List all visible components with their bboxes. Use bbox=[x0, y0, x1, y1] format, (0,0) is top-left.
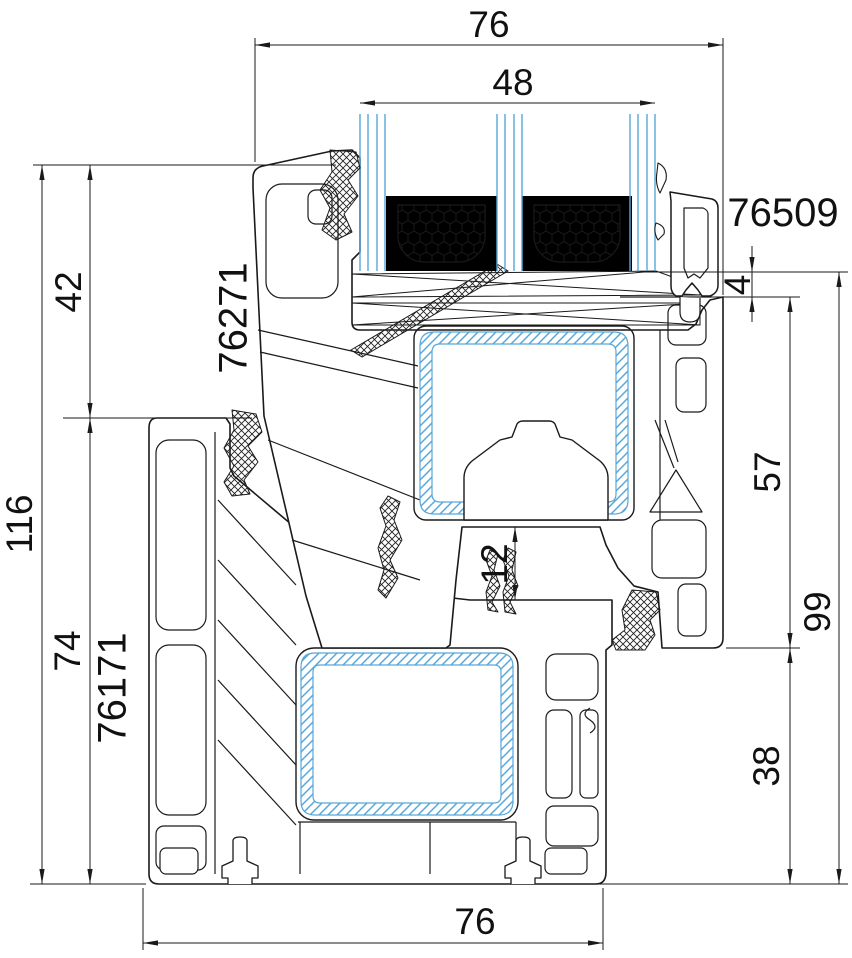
dim-frame-height: 74 bbox=[47, 630, 88, 671]
label-frame-profile: 76171 bbox=[91, 632, 135, 743]
bead-gasket-tip bbox=[655, 163, 666, 240]
dim-rebate-height: 99 bbox=[797, 591, 838, 632]
spacer-honeycomb-right bbox=[534, 205, 620, 262]
spacer-honeycomb-left bbox=[398, 205, 485, 262]
dim-glass-clearance: 4 bbox=[717, 275, 758, 296]
dim-sash-face-height: 42 bbox=[48, 271, 89, 312]
window-cross-section-drawing: 76 48 116 42 74 12 4 57 99 38 76 76271 7… bbox=[0, 0, 852, 958]
glazing-bead-profile bbox=[655, 163, 718, 322]
label-sash-profile: 76271 bbox=[212, 262, 256, 373]
cross-section-svg: 76 48 116 42 74 12 4 57 99 38 76 76271 7… bbox=[0, 0, 852, 958]
dim-frame-lower-height: 38 bbox=[746, 745, 787, 786]
glazing-unit bbox=[360, 114, 655, 271]
dim-frame-width: 76 bbox=[454, 901, 495, 942]
dim-sash-profile-height: 57 bbox=[747, 451, 788, 492]
dim-overall-height: 116 bbox=[0, 495, 40, 554]
dim-glazing-thickness: 48 bbox=[492, 62, 533, 103]
dim-sash-width: 76 bbox=[468, 4, 509, 45]
dim-hardware-gap: 12 bbox=[474, 543, 515, 584]
exterior-sash-gasket bbox=[612, 590, 660, 650]
label-bead-profile: 76509 bbox=[727, 191, 838, 235]
bead-clip bbox=[680, 297, 700, 322]
